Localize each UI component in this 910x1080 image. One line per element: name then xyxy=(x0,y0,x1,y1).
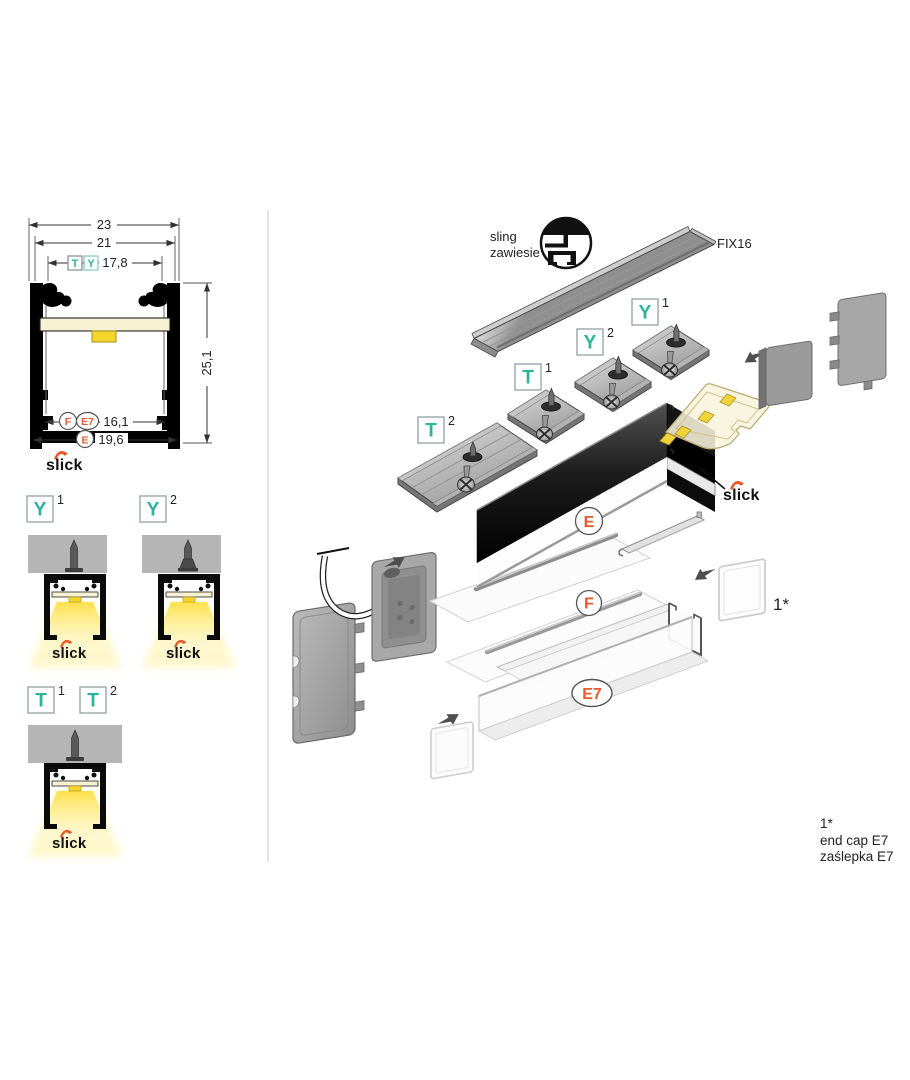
dim-outer-width: 23 xyxy=(97,217,111,232)
plate-y2-sup: 2 xyxy=(607,326,614,340)
variant-t2-letter: T xyxy=(87,691,99,712)
dim-top-opening: 17,8 xyxy=(102,255,127,270)
mount-plate-y1 xyxy=(633,325,709,380)
plate-t2-letter: T xyxy=(425,421,437,442)
dim-bottom-outer: 19,6 xyxy=(98,432,123,447)
endcap-e7-right xyxy=(719,559,765,621)
brand-logo: slick xyxy=(52,835,87,852)
rail-name-label: FIX16 xyxy=(717,236,752,251)
mount-plate-t1 xyxy=(508,389,584,444)
endcap-left-cable xyxy=(372,552,436,662)
endcap-right-far xyxy=(830,292,886,395)
assembly-arrow-e7-right xyxy=(691,562,717,585)
brand-logo: slick xyxy=(46,457,83,474)
dim-label-f: F xyxy=(65,416,72,428)
plate-t1-letter: T xyxy=(522,368,534,389)
plate-y1-sup: 1 xyxy=(662,296,669,310)
part-label-e: E xyxy=(584,514,595,531)
variant-y1-diagram: Y 1 slick xyxy=(27,493,122,668)
footnote-line2: zaślepka E7 xyxy=(820,849,894,864)
endcap-ref-label: 1* xyxy=(773,595,789,614)
sling-label-line1: sling xyxy=(490,229,517,244)
plate-t1-sup: 1 xyxy=(545,361,552,375)
plate-y2-letter: Y xyxy=(584,333,597,354)
variant-t1-sup: 1 xyxy=(58,684,65,698)
profile-datasheet-page: 23 21 T Y 17,8 25,1 F E7 16,1 E 19,6 sli… xyxy=(0,0,910,1080)
variant-t-diagram: T 1 T 2 slick xyxy=(28,684,122,857)
cross-section-diagram: 23 21 T Y 17,8 25,1 F E7 16,1 E 19,6 sli… xyxy=(29,217,214,474)
brand-logo: slick xyxy=(723,487,760,504)
cable-end-mark xyxy=(317,548,349,554)
endcap-right-near xyxy=(759,341,812,409)
brand-logo: slick xyxy=(52,645,87,662)
endcap-left-outer xyxy=(293,601,364,744)
plate-label-y1: Y 1 xyxy=(632,296,669,325)
part-label-e7: E7 xyxy=(582,686,602,703)
plate-label-t2: T 2 xyxy=(418,414,455,443)
dim-label-e: E xyxy=(81,435,88,447)
dim-height: 25,1 xyxy=(199,350,214,375)
plate-t2-sup: 2 xyxy=(448,414,455,428)
variant-y2-letter: Y xyxy=(147,500,160,521)
variant-t2-sup: 2 xyxy=(110,684,117,698)
dim-label-t: T xyxy=(72,258,79,270)
endcap-e7-left xyxy=(431,722,473,779)
dim-bottom-inner: 16,1 xyxy=(103,414,128,429)
dim-inner-width: 21 xyxy=(97,235,111,250)
variant-y1-sup: 1 xyxy=(57,493,64,507)
dim-label-y: Y xyxy=(87,258,95,270)
variant-y2-diagram: Y 2 slick xyxy=(140,493,236,668)
diagram-canvas: 23 21 T Y 17,8 25,1 F E7 16,1 E 19,6 sli… xyxy=(0,0,910,1080)
footnote-line1: end cap E7 xyxy=(820,833,888,848)
variant-y2-sup: 2 xyxy=(170,493,177,507)
plate-y1-letter: Y xyxy=(639,303,652,324)
sling-callout: sling zawiesie xyxy=(490,218,591,268)
sling-icon xyxy=(541,218,591,268)
brand-logo: slick xyxy=(166,645,201,662)
variant-y1-letter: Y xyxy=(34,500,47,521)
sling-label-line2: zawiesie xyxy=(490,245,540,260)
dim-label-e7: E7 xyxy=(81,416,94,428)
footnote-ref: 1* xyxy=(820,816,834,831)
plate-label-t1: T 1 xyxy=(515,361,552,390)
part-label-f: F xyxy=(584,596,594,613)
mount-plate-y2 xyxy=(575,357,651,412)
diffuser-clip-rail xyxy=(619,512,704,556)
plate-label-y2: Y 2 xyxy=(577,326,614,355)
footnote: 1* end cap E7 zaślepka E7 xyxy=(820,816,894,864)
ceiling-block xyxy=(28,535,107,573)
variant-t1-letter: T xyxy=(35,691,47,712)
